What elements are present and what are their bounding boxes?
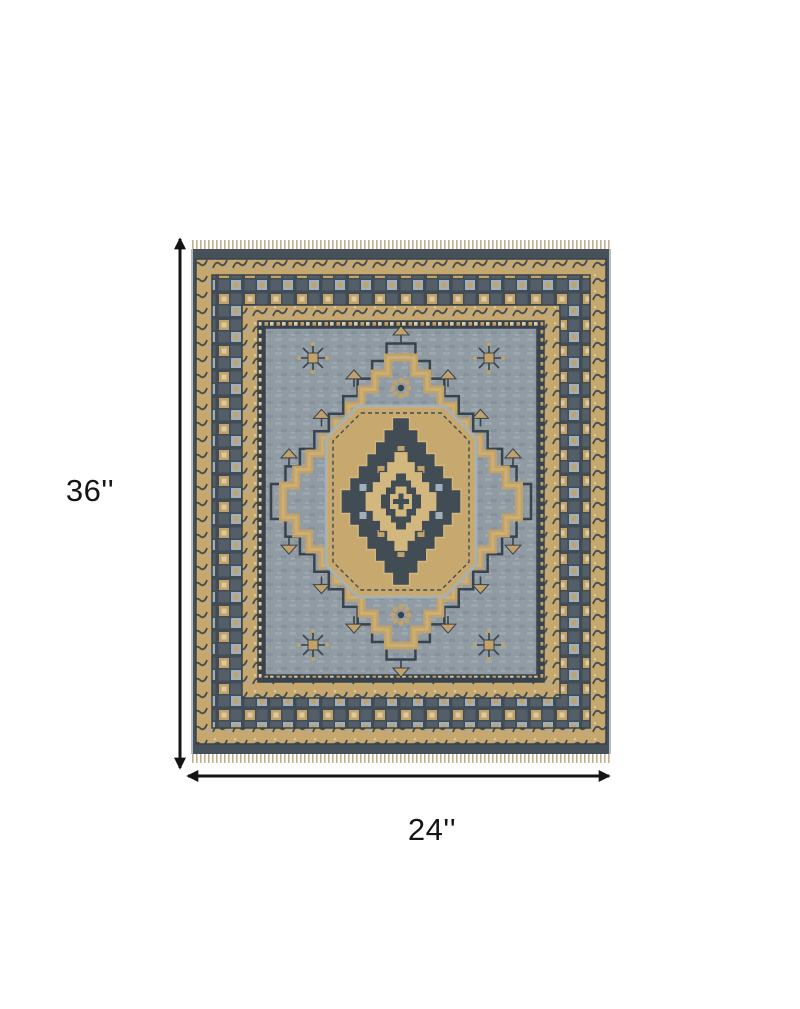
height-dimension-label: 36'' (46, 473, 134, 509)
rug-image (191, 240, 611, 763)
width-dimension-label: 24'' (388, 812, 476, 848)
product-dimension-diagram: 36'' 24'' (0, 0, 800, 1009)
